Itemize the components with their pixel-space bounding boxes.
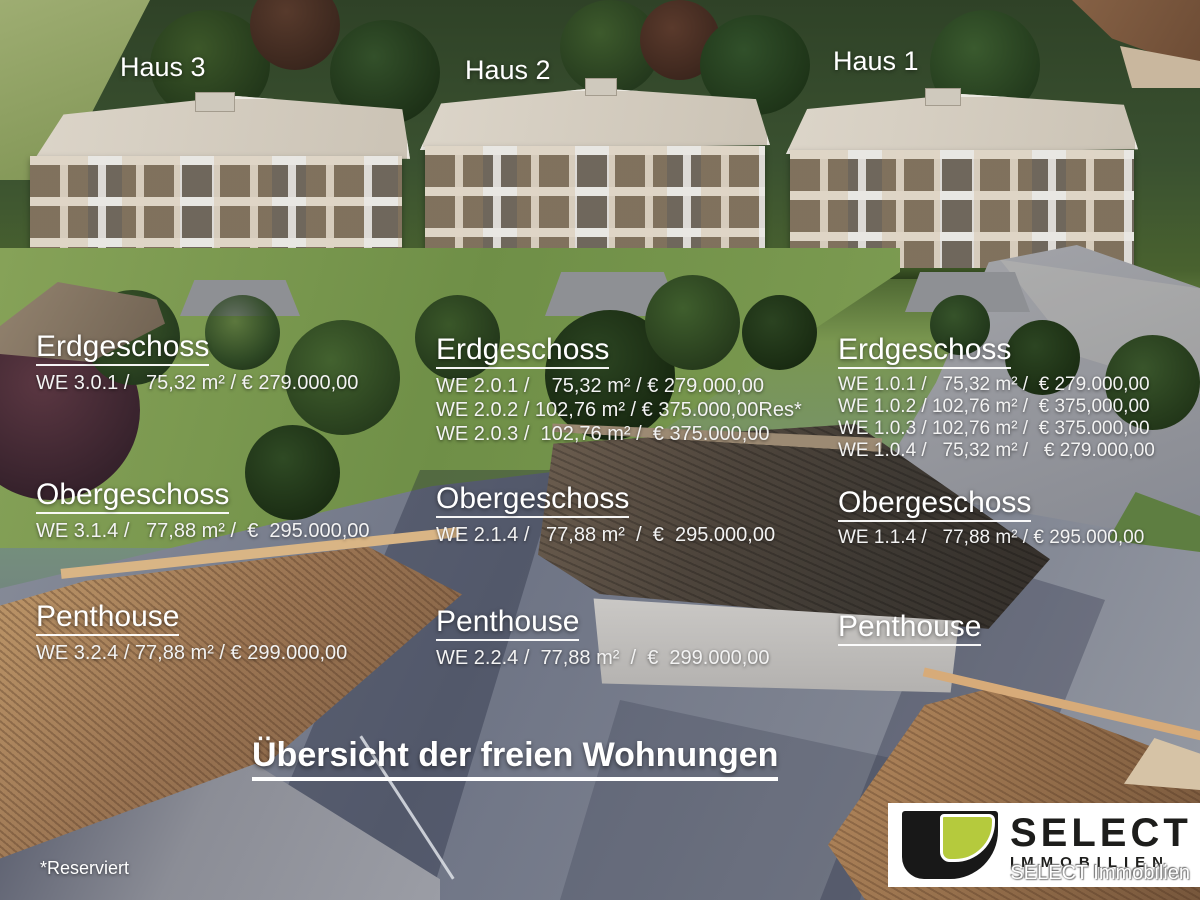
- section-heading: Obergeschoss: [436, 482, 775, 515]
- logo-caption: SELECT Immobilien: [1010, 862, 1190, 885]
- haus1-chimney: [925, 88, 961, 106]
- section-heading: Erdgeschoss: [838, 333, 1155, 366]
- unit-line: WE 2.2.4 / 77,88 m² / € 299.000,00: [436, 646, 770, 670]
- section-heading: Obergeschoss: [838, 486, 1144, 519]
- haus1-roof: [786, 94, 1138, 154]
- haus2-erdgeschoss-section: Erdgeschoss WE 2.0.1 / 75,32 m² / € 279.…: [436, 333, 802, 446]
- haus1-erdgeschoss-section: Erdgeschoss WE 1.0.1 / 75,32 m² / € 279.…: [838, 333, 1155, 462]
- unit-line: WE 2.0.3 / 102,76 m² / € 375.000,00: [436, 422, 802, 446]
- unit-line: WE 1.0.3 / 102,76 m² / € 375.000,00: [838, 418, 1155, 440]
- section-heading: Penthouse: [436, 605, 770, 638]
- haus2-penthouse-section: Penthouse WE 2.2.4 / 77,88 m² / € 299.00…: [436, 605, 770, 670]
- unit-line: WE 3.2.4 / 77,88 m² / € 299.000,00: [36, 641, 347, 665]
- haus1-penthouse-section: Penthouse: [838, 610, 981, 643]
- unit-line: WE 1.0.1 / 75,32 m² / € 279.000,00: [838, 374, 1155, 396]
- unit-line: WE 3.1.4 / 77,88 m² / € 295.000,00: [36, 519, 370, 543]
- haus2-obergeschoss-section: Obergeschoss WE 2.1.4 / 77,88 m² / € 295…: [436, 482, 775, 547]
- unit-line: WE 1.0.2 / 102,76 m² / € 375,000,00: [838, 396, 1155, 418]
- section-heading: Erdgeschoss: [36, 330, 358, 363]
- haus2-roof: [420, 88, 770, 150]
- unit-line: WE 1.1.4 / 77,88 m² / € 295.000,00: [838, 527, 1144, 549]
- haus3-obergeschoss-section: Obergeschoss WE 3.1.4 / 77,88 m² / € 295…: [36, 478, 370, 543]
- section-heading: Obergeschoss: [36, 478, 370, 511]
- reserved-footnote: *Reserviert: [40, 858, 129, 879]
- logo-mark-icon: [902, 811, 998, 879]
- logo-brand: SELECT: [1010, 813, 1190, 853]
- haus2-chimney: [585, 78, 617, 96]
- unit-line: WE 1.0.4 / 75,32 m² / € 279.000,00: [838, 440, 1155, 462]
- haus2-label: Haus 2: [465, 55, 551, 86]
- unit-line: WE 2.0.2 / 102,76 m² / € 375.000,00Res*: [436, 398, 802, 422]
- unit-line: WE 2.0.1 / 75,32 m² / € 279.000,00: [436, 374, 802, 398]
- haus3-penthouse-section: Penthouse WE 3.2.4 / 77,88 m² / € 299.00…: [36, 600, 347, 665]
- haus3-chimney: [195, 92, 235, 112]
- haus3-label: Haus 3: [120, 52, 206, 83]
- section-heading: Penthouse: [838, 610, 981, 643]
- haus3-erdgeschoss-section: Erdgeschoss WE 3.0.1 / 75,32 m² / € 279.…: [36, 330, 358, 395]
- section-heading: Penthouse: [36, 600, 347, 633]
- logo-green-quarter-icon: [940, 814, 995, 862]
- unit-line: WE 2.1.4 / 77,88 m² / € 295.000,00: [436, 523, 775, 547]
- haus1-obergeschoss-section: Obergeschoss WE 1.1.4 / 77,88 m² / € 295…: [838, 486, 1144, 549]
- flyer-canvas: Haus 3 Haus 2 Haus 1 Erdgeschoss WE 3.0.…: [0, 0, 1200, 900]
- haus1-label: Haus 1: [833, 46, 919, 77]
- unit-line: WE 3.0.1 / 75,32 m² / € 279.000,00: [36, 371, 358, 395]
- page-title: Übersicht der freien Wohnungen: [252, 736, 778, 775]
- section-heading: Erdgeschoss: [436, 333, 802, 366]
